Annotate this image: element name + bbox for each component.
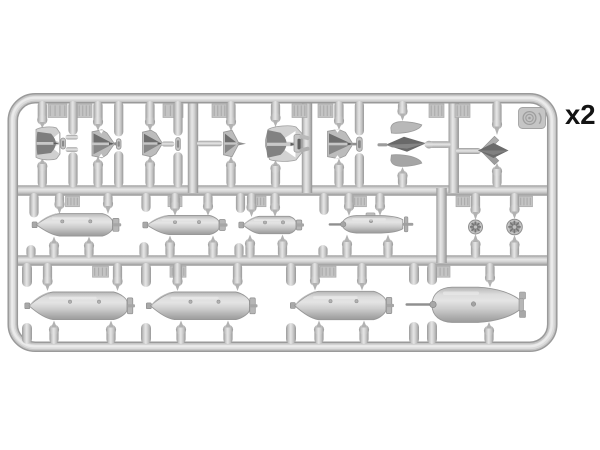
svg-text:x2: x2 xyxy=(565,99,596,130)
